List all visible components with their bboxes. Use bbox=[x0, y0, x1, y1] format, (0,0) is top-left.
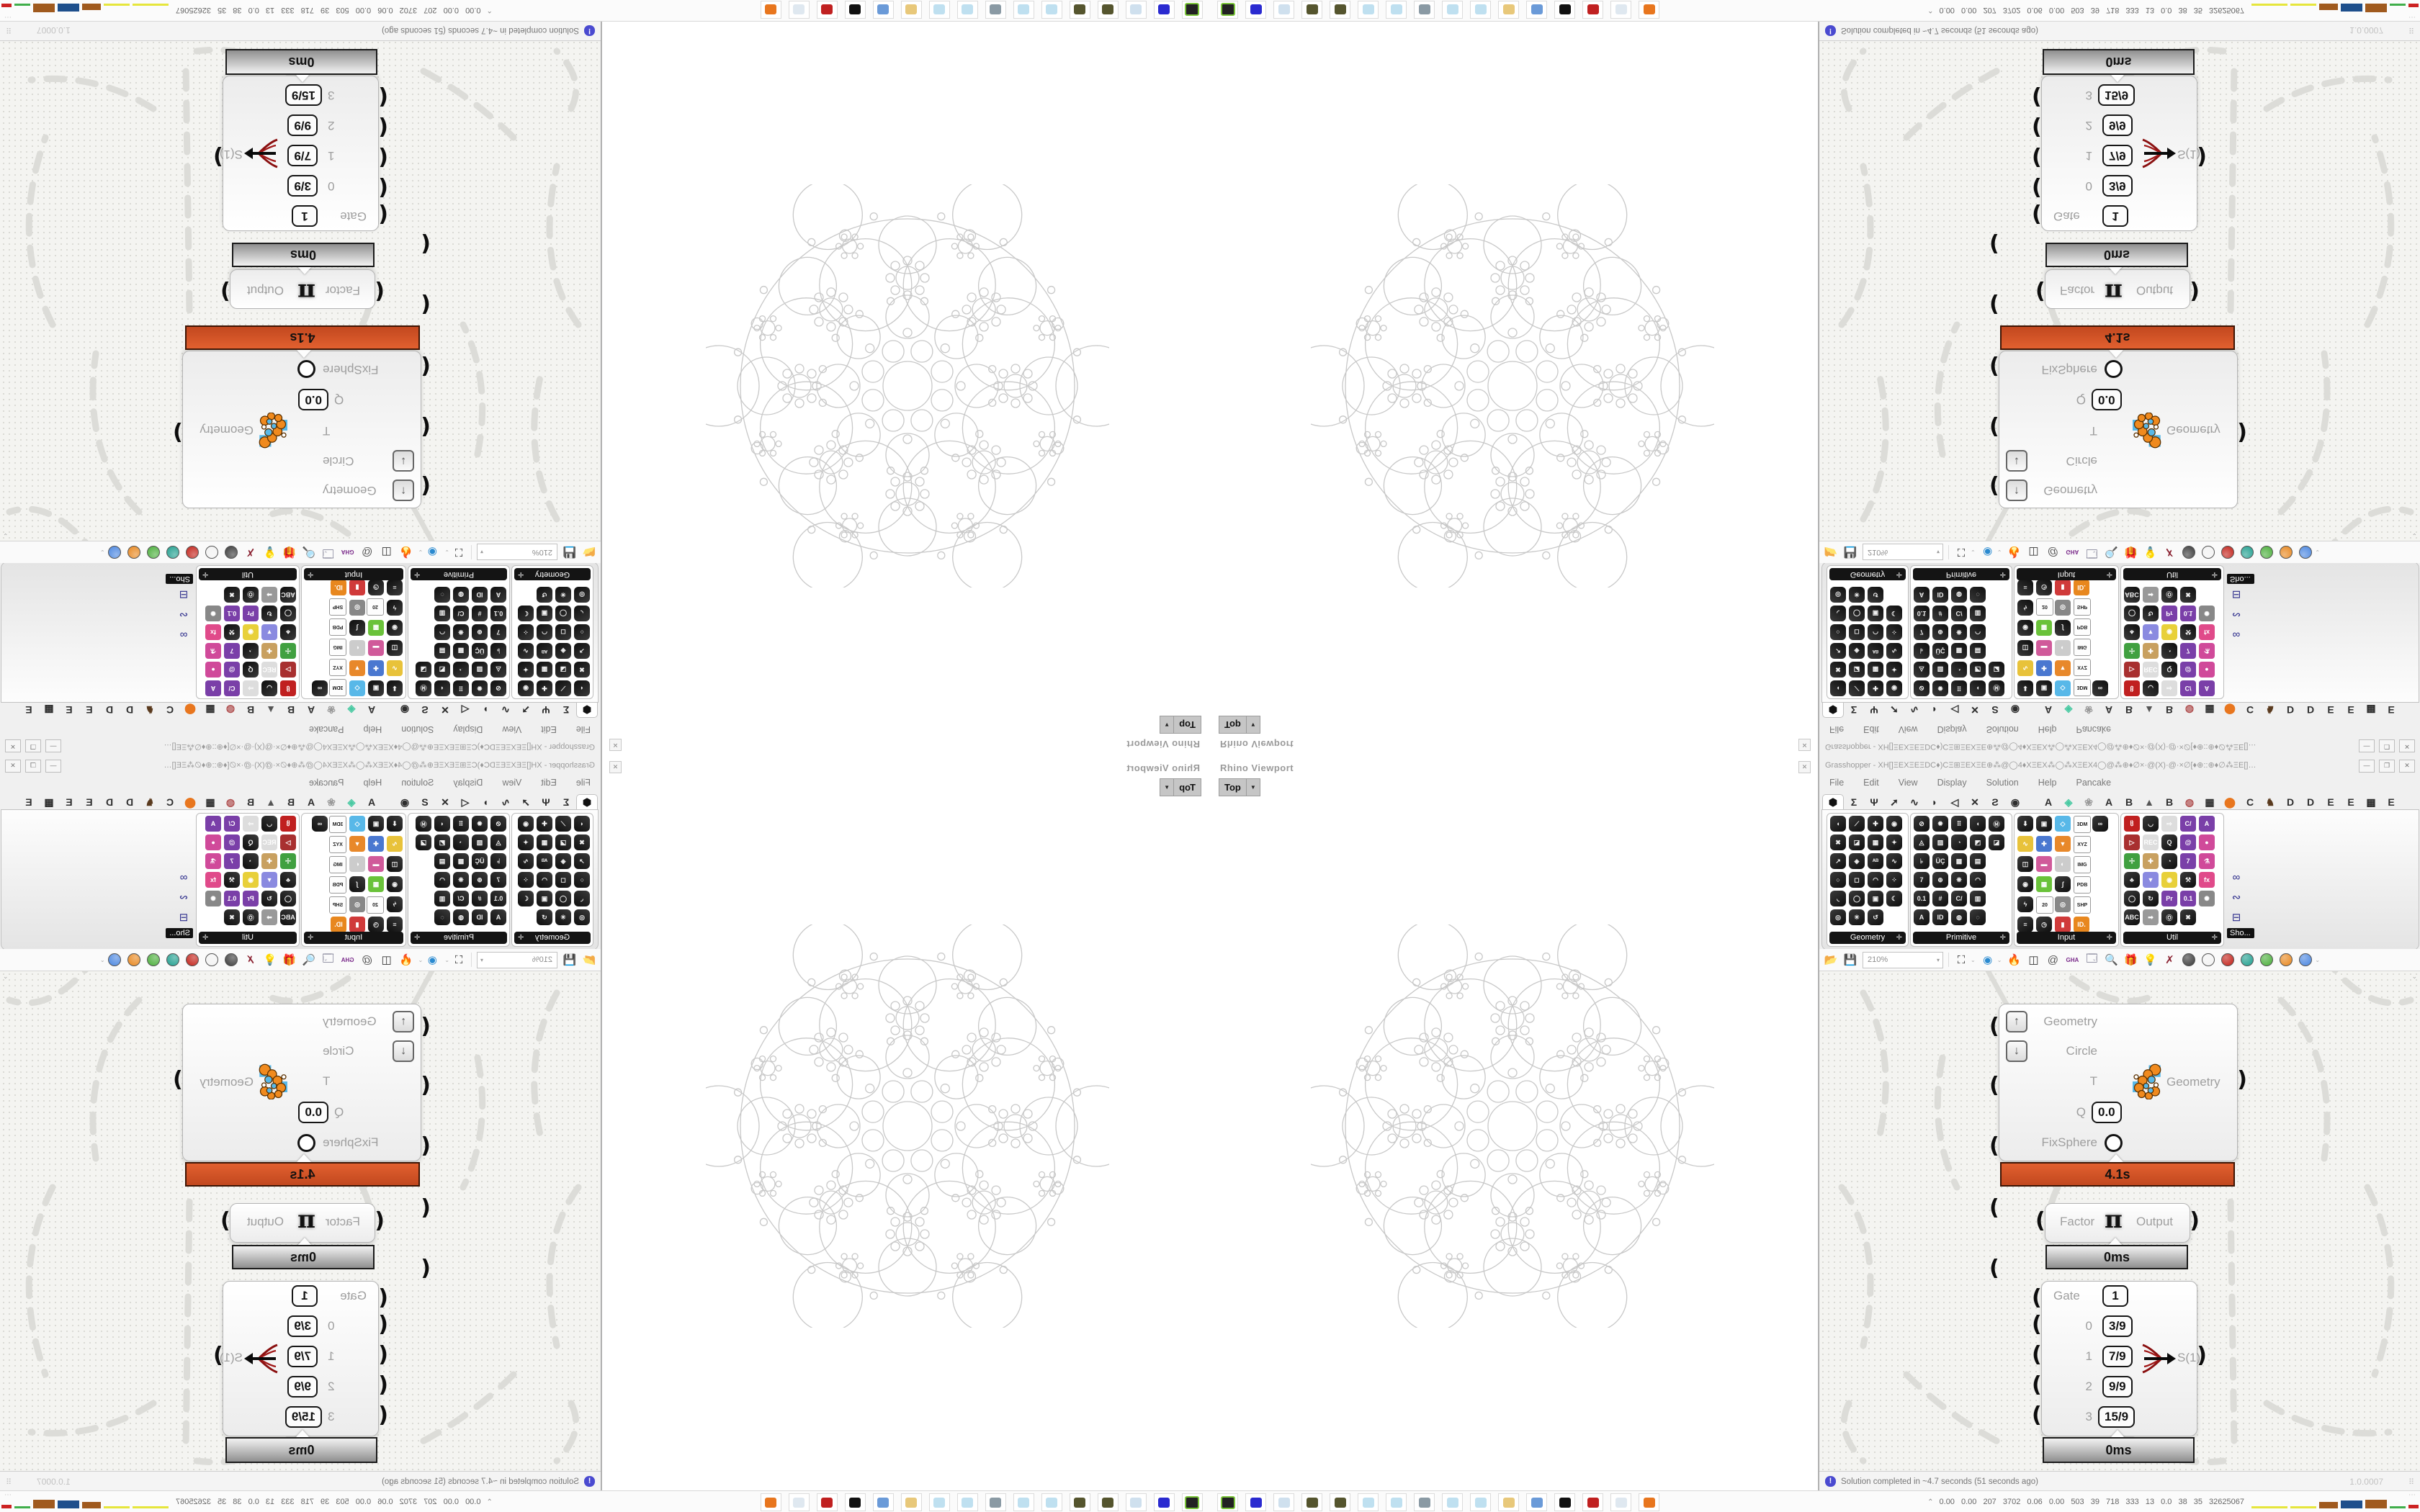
panel-footer[interactable]: Primitive✛ bbox=[1913, 568, 2009, 580]
component-icon[interactable]: ◍ bbox=[453, 587, 469, 603]
panel-footer[interactable]: Input✛ bbox=[2017, 932, 2116, 944]
component-icon[interactable]: ◟ bbox=[1830, 891, 1846, 906]
component-icon[interactable]: ◖ bbox=[434, 680, 450, 696]
component-icon[interactable]: ⁘ bbox=[518, 872, 534, 888]
component-icon[interactable]: PDB bbox=[2074, 618, 2091, 636]
close-icon[interactable]: ✕ bbox=[609, 761, 622, 773]
notepad2-app-icon[interactable] bbox=[1013, 1, 1034, 19]
close-icon[interactable]: ✕ bbox=[1798, 761, 1811, 773]
component-icon[interactable]: ◉ bbox=[518, 680, 534, 696]
component-icon[interactable]: ✖ bbox=[574, 662, 590, 678]
gate-row-value[interactable]: 9/9 bbox=[2102, 1376, 2133, 1398]
component-icon[interactable]: ❋ bbox=[1951, 872, 1967, 888]
preview-shaded-icon[interactable] bbox=[185, 545, 200, 559]
find-icon[interactable]: 🔍 bbox=[302, 545, 316, 559]
group-teal-icon[interactable] bbox=[2240, 953, 2254, 967]
component-icon[interactable]: ◎ bbox=[574, 587, 590, 603]
preview-settings-icon[interactable]: ◉ bbox=[425, 953, 439, 967]
component-icon[interactable]: A bbox=[490, 909, 506, 925]
category-tab[interactable]: A bbox=[2038, 703, 2058, 717]
menu-item-display[interactable]: Display bbox=[453, 720, 483, 734]
component-icon[interactable]: A bbox=[205, 816, 221, 832]
component-icon[interactable]: ✹ bbox=[472, 680, 488, 696]
component-icon[interactable]: A bbox=[490, 587, 506, 603]
output-grip[interactable]: ) bbox=[2197, 147, 2207, 166]
category-tab[interactable]: Σ bbox=[1844, 795, 1864, 809]
category-tab[interactable]: ♞ bbox=[2260, 703, 2280, 717]
component-icon[interactable]: ◉ bbox=[387, 876, 403, 892]
input-grip[interactable]: ( bbox=[1989, 1017, 1999, 1036]
component-icon[interactable]: ◐ bbox=[349, 640, 365, 656]
resize-grip[interactable]: ⠿ bbox=[2408, 1477, 2415, 1487]
arrow-down-icon[interactable]: ↓ bbox=[393, 450, 414, 472]
category-tab[interactable]: ◁ bbox=[1945, 795, 1965, 809]
category-tab[interactable]: Ƨ bbox=[415, 795, 435, 809]
input-grip[interactable]: ( bbox=[1989, 1259, 1999, 1278]
menu-item-view[interactable]: View bbox=[1899, 720, 1918, 734]
component-icon[interactable]: ◪ bbox=[1849, 662, 1865, 678]
chevron-down-icon[interactable]: ⌄ bbox=[2315, 549, 2320, 556]
panel-footer[interactable]: Input✛ bbox=[304, 932, 403, 944]
gate-value-box[interactable]: 1 bbox=[2102, 1285, 2128, 1307]
component-icon[interactable]: Pr bbox=[2161, 606, 2177, 621]
component-icon[interactable]: ◌ bbox=[434, 587, 450, 603]
category-tab[interactable]: E bbox=[79, 795, 99, 809]
preview-off-icon[interactable] bbox=[2182, 545, 2196, 559]
sketch-icon[interactable]: 🔥 bbox=[2007, 953, 2021, 967]
category-tab[interactable]: A bbox=[2099, 703, 2119, 717]
calc-app-icon[interactable] bbox=[1610, 1493, 1631, 1511]
input-grip[interactable]: ( bbox=[2032, 1315, 2042, 1334]
component-icon[interactable]: C/ bbox=[453, 891, 469, 906]
category-tab[interactable]: ∿ bbox=[1904, 703, 1924, 717]
close-icon[interactable]: ✕ bbox=[609, 739, 622, 751]
group-green-icon[interactable] bbox=[2259, 545, 2274, 559]
input-grip[interactable]: ( bbox=[421, 1199, 431, 1218]
component-icon[interactable]: C/ bbox=[1951, 891, 1967, 906]
component-icon[interactable]: ◔ bbox=[453, 662, 469, 678]
presentation-icon[interactable]: ⊟ bbox=[2227, 908, 2246, 927]
component-icon[interactable]: 0.1 bbox=[490, 606, 506, 621]
zoom-extents-icon[interactable]: ⛶ bbox=[1954, 953, 1968, 967]
component-icon[interactable]: ◔ bbox=[1951, 834, 1967, 850]
component-icon[interactable]: 0.1 bbox=[490, 891, 506, 906]
output-grip[interactable]: ) bbox=[213, 1346, 223, 1365]
component-icon[interactable]: ✖ bbox=[224, 587, 240, 603]
arrow-up-icon[interactable]: ↑ bbox=[2006, 1011, 2027, 1032]
category-tab[interactable]: ◈ bbox=[341, 703, 362, 717]
rewire-icon[interactable]: ✗ bbox=[2162, 545, 2177, 559]
group-orange-icon[interactable] bbox=[127, 953, 141, 967]
component-icon[interactable]: ABC bbox=[280, 909, 296, 925]
category-tab[interactable]: E bbox=[79, 703, 99, 717]
gha-icon[interactable]: GHA bbox=[341, 953, 355, 967]
fixsphere-cluster-component[interactable]: ( ↑ Geometry ( ↓ Circle ( T ( bbox=[182, 1004, 421, 1161]
component-icon[interactable]: ◡ bbox=[261, 816, 277, 832]
component-icon[interactable]: ◪ bbox=[555, 662, 571, 678]
input-grip[interactable]: ( bbox=[378, 204, 388, 223]
folder-app-icon[interactable] bbox=[1498, 1493, 1519, 1511]
close-icon[interactable]: ✕ bbox=[2399, 739, 2415, 752]
menu-item-edit[interactable]: Edit bbox=[541, 720, 557, 734]
gate-row-value[interactable]: 3/9 bbox=[2102, 175, 2133, 197]
input-grip[interactable]: ( bbox=[2032, 117, 2042, 136]
component-icon[interactable]: ☩ bbox=[2124, 643, 2140, 659]
component-icon[interactable]: ✺ bbox=[2199, 606, 2215, 621]
gate-row-value[interactable]: 7/9 bbox=[2102, 145, 2133, 166]
category-tab[interactable]: ✕ bbox=[1965, 703, 1985, 717]
chevron-down-icon[interactable]: ⌄ bbox=[3, 531, 9, 539]
grasshopper-canvas[interactable]: ⌄ ( ↑ Geometry ( ↓ Circle ( T bbox=[1820, 41, 2420, 541]
output-grip[interactable]: ) bbox=[2237, 1071, 2247, 1089]
component-icon[interactable]: ◉ bbox=[243, 624, 259, 640]
input-grip[interactable]: ( bbox=[2032, 87, 2042, 106]
component-icon[interactable]: ➡ bbox=[2143, 587, 2159, 603]
pi-component[interactable]: ( Factor π Output ) bbox=[2045, 269, 2190, 309]
component-icon[interactable]: ▦ bbox=[2036, 620, 2052, 636]
chevron-down-icon[interactable]: ⌄ bbox=[418, 957, 423, 963]
component-icon[interactable]: ∞ bbox=[312, 680, 328, 696]
component-icon[interactable]: ▼ bbox=[2055, 660, 2071, 676]
rewire-icon[interactable]: ✗ bbox=[243, 953, 258, 967]
firefox-app-icon[interactable] bbox=[761, 1493, 781, 1511]
component-icon[interactable]: ▨ bbox=[1932, 662, 1948, 678]
component-icon[interactable]: ◖ bbox=[1970, 816, 1986, 832]
save-file-icon[interactable]: 💾 bbox=[563, 953, 577, 967]
wire-record-icon[interactable]: ∞ bbox=[2227, 868, 2246, 886]
component-icon[interactable]: ✹ bbox=[1932, 816, 1948, 832]
component-icon[interactable]: Q bbox=[243, 662, 259, 678]
component-icon[interactable]: ◠ bbox=[434, 872, 450, 888]
badge-app-icon[interactable] bbox=[1582, 1, 1603, 19]
component-icon[interactable]: ◪ bbox=[1989, 662, 2004, 678]
component-icon[interactable]: SHP bbox=[329, 598, 346, 616]
component-icon[interactable]: ♭ bbox=[490, 643, 506, 659]
category-tab[interactable]: ▦ bbox=[200, 703, 220, 717]
calc-app-icon[interactable] bbox=[1610, 1, 1631, 19]
preview-wire-icon[interactable] bbox=[205, 953, 219, 967]
fixsphere-toggle[interactable] bbox=[297, 1134, 315, 1152]
fixsphere-toggle[interactable] bbox=[2105, 1134, 2123, 1152]
component-icon[interactable]: ÜÇ bbox=[472, 643, 488, 659]
chevron-down-icon[interactable]: ⌄ bbox=[1997, 957, 2002, 963]
input-grip[interactable]: ( bbox=[375, 282, 385, 300]
resize-grip[interactable]: ⠿ bbox=[5, 1477, 12, 1487]
component-icon[interactable]: # bbox=[472, 606, 488, 621]
gha-icon[interactable]: GHA bbox=[341, 545, 355, 559]
component-icon[interactable]: ✹ bbox=[1932, 680, 1948, 696]
input-grip[interactable]: ( bbox=[378, 117, 388, 136]
panel-footer[interactable]: Util✛ bbox=[199, 568, 297, 580]
component-icon[interactable]: ♭ bbox=[1914, 643, 1930, 659]
component-icon[interactable]: ⚗ bbox=[2199, 853, 2215, 869]
component-icon[interactable]: 20 bbox=[367, 896, 384, 914]
component-icon[interactable]: ▮ bbox=[2055, 917, 2071, 932]
category-tab[interactable]: ❀ bbox=[321, 703, 341, 717]
component-icon[interactable]: 7 bbox=[224, 643, 240, 659]
component-icon[interactable]: ▨ bbox=[1932, 834, 1948, 850]
chevron-down-icon[interactable]: ⌄ bbox=[444, 549, 449, 556]
document-icon[interactable]: 🗔 bbox=[321, 545, 336, 559]
component-icon[interactable]: ◖ bbox=[574, 816, 590, 832]
component-icon[interactable]: ◔ bbox=[243, 853, 259, 869]
preview-shaded-icon[interactable] bbox=[2220, 953, 2235, 967]
component-icon[interactable]: IMG bbox=[2074, 856, 2091, 873]
chevron-down-icon[interactable]: ⌄ bbox=[418, 549, 423, 556]
component-icon[interactable]: Pr bbox=[243, 606, 259, 621]
component-icon[interactable]: ∫ bbox=[2055, 876, 2071, 892]
component-icon[interactable]: ◠ bbox=[1868, 872, 1883, 888]
component-icon[interactable]: ∞ bbox=[312, 816, 328, 832]
component-icon[interactable]: ↺ bbox=[1868, 909, 1883, 925]
component-icon[interactable]: ◐ bbox=[2055, 640, 2071, 656]
category-tab[interactable]: ▩ bbox=[39, 795, 59, 809]
firefox-app-icon[interactable] bbox=[761, 1, 781, 19]
menu-item-view[interactable]: View bbox=[1899, 778, 1918, 792]
component-icon[interactable]: ÜÇ bbox=[1932, 643, 1948, 659]
category-tab[interactable]: ◉ bbox=[395, 795, 415, 809]
chevron-down-icon[interactable]: ⌄ bbox=[2411, 531, 2417, 539]
gate-row-value[interactable]: 15/9 bbox=[285, 84, 322, 106]
gate-row-value[interactable]: 9/9 bbox=[287, 114, 318, 136]
component-icon[interactable]: 3DM bbox=[329, 816, 346, 833]
pinball-app-icon[interactable] bbox=[845, 1493, 866, 1511]
input-grip[interactable]: ( bbox=[421, 476, 431, 495]
category-tab[interactable]: ◈ bbox=[2058, 795, 2079, 809]
component-icon[interactable]: 7 bbox=[2180, 643, 2196, 659]
pinball-app-icon[interactable] bbox=[1554, 1, 1575, 19]
gate-row-value[interactable]: 7/9 bbox=[287, 145, 318, 166]
category-tab[interactable]: A bbox=[2099, 795, 2119, 809]
gha-icon[interactable]: GHA bbox=[2065, 545, 2079, 559]
component-icon[interactable]: ⊘ bbox=[1914, 680, 1930, 696]
find-icon[interactable]: 🔍 bbox=[302, 953, 316, 967]
floppy64-app-icon[interactable] bbox=[1154, 1493, 1175, 1511]
category-tab[interactable]: Ψ bbox=[1864, 795, 1884, 809]
tray-overflow-icon[interactable]: ⋯ bbox=[4, 13, 12, 21]
component-icon[interactable]: Pr bbox=[243, 891, 259, 906]
component-icon[interactable]: ◎ bbox=[1830, 909, 1846, 925]
stream-gate-component[interactable]: ( Gate 1 (03/9(17/9(29/9(315/9 S(1) bbox=[2041, 1281, 2197, 1436]
category-tab[interactable]: ∿ bbox=[496, 703, 516, 717]
component-icon[interactable]: ჱ bbox=[280, 816, 296, 832]
category-tab[interactable]: E bbox=[2381, 795, 2401, 809]
component-icon[interactable]: ✺ bbox=[205, 606, 221, 621]
component-icon[interactable]: ◯ bbox=[2124, 891, 2140, 906]
component-icon[interactable]: ⬇ bbox=[2017, 680, 2033, 696]
component-icon[interactable]: ᴬᴮ bbox=[537, 643, 552, 659]
category-tab[interactable]: ❀ bbox=[321, 795, 341, 809]
panel-footer[interactable]: Geometry✛ bbox=[1829, 932, 1906, 944]
category-tab[interactable]: D bbox=[99, 703, 120, 717]
component-icon[interactable]: ↗ bbox=[1830, 853, 1846, 869]
component-icon[interactable]: ◌ bbox=[434, 909, 450, 925]
wire-record-icon[interactable]: ∞ bbox=[2227, 626, 2246, 644]
component-icon[interactable]: ◍ bbox=[1951, 587, 1967, 603]
component-icon[interactable]: ✖ bbox=[2180, 909, 2196, 925]
component-icon[interactable]: XYZ bbox=[329, 836, 346, 853]
component-icon[interactable]: ◉ bbox=[2017, 876, 2033, 892]
viewport-name-dropdown[interactable]: Top ▼ bbox=[1160, 778, 1201, 796]
tray-expand-icon[interactable]: ⌃ bbox=[486, 1498, 492, 1506]
component-icon[interactable]: ▤ bbox=[434, 853, 450, 869]
category-tab[interactable]: ◗ bbox=[1924, 703, 1945, 717]
component-icon[interactable]: ID bbox=[472, 587, 488, 603]
group-green-icon[interactable] bbox=[2259, 953, 2274, 967]
component-icon[interactable]: ↗ bbox=[1830, 643, 1846, 659]
category-tab[interactable]: ♞ bbox=[2260, 795, 2280, 809]
category-tab[interactable]: ▦ bbox=[2200, 795, 2220, 809]
preview-off-icon[interactable] bbox=[2182, 953, 2196, 967]
component-icon[interactable]: ◩ bbox=[1970, 834, 1986, 850]
panel-footer[interactable]: Geometry✛ bbox=[514, 568, 591, 580]
input-grip[interactable]: ( bbox=[1989, 1076, 1999, 1095]
open-file-icon[interactable]: 📂 bbox=[1824, 953, 1838, 967]
component-icon[interactable]: ◡ bbox=[261, 680, 277, 696]
component-icon[interactable]: ● bbox=[205, 662, 221, 678]
notepad4-app-icon[interactable] bbox=[929, 1493, 950, 1511]
category-tab[interactable]: C bbox=[160, 795, 180, 809]
component-icon[interactable]: 3DM bbox=[329, 679, 346, 696]
category-tab[interactable]: B bbox=[281, 703, 301, 717]
component-icon[interactable]: ◫ bbox=[387, 640, 403, 656]
component-icon[interactable]: ☾ bbox=[518, 891, 534, 906]
maximize-icon[interactable]: ❐ bbox=[2379, 739, 2395, 752]
notepad3-app-icon[interactable] bbox=[957, 1, 978, 19]
component-icon[interactable]: ◠ bbox=[537, 872, 552, 888]
presentation-icon[interactable]: ⊟ bbox=[2227, 585, 2246, 604]
component-icon[interactable]: ◎ bbox=[2055, 600, 2071, 616]
control-app-icon[interactable] bbox=[1526, 1, 1547, 19]
group-blue-icon[interactable] bbox=[107, 545, 122, 559]
badge-app-icon[interactable] bbox=[817, 1493, 838, 1511]
category-tab[interactable]: D bbox=[120, 703, 140, 717]
input-grip[interactable]: ( bbox=[378, 1376, 388, 1395]
component-icon[interactable]: ⚒ bbox=[2180, 872, 2196, 888]
component-icon[interactable]: ◈ bbox=[555, 853, 571, 869]
component-icon[interactable]: ♣ bbox=[280, 872, 296, 888]
component-icon[interactable]: ✳ bbox=[1849, 587, 1865, 603]
component-icon[interactable]: ◻ bbox=[1849, 624, 1865, 640]
component-icon[interactable]: ◌ bbox=[1970, 909, 1986, 925]
category-tab[interactable]: ⬢ bbox=[1822, 794, 1844, 809]
category-tab[interactable]: ◉ bbox=[2005, 795, 2025, 809]
input-grip[interactable]: ( bbox=[378, 1406, 388, 1425]
arrow-up-icon[interactable]: ↑ bbox=[2006, 480, 2027, 501]
component-icon[interactable]: XYZ bbox=[2074, 836, 2091, 853]
component-icon[interactable]: ▥ bbox=[434, 606, 450, 621]
folder-app-icon[interactable] bbox=[901, 1493, 922, 1511]
component-icon[interactable]: ÜÇ bbox=[472, 853, 488, 869]
notepad3-app-icon[interactable] bbox=[1442, 1493, 1463, 1511]
output-grip[interactable]: ) bbox=[213, 147, 223, 166]
component-icon[interactable]: ▣ bbox=[368, 816, 384, 832]
component-icon[interactable]: XYZ bbox=[2074, 659, 2091, 676]
component-icon[interactable]: ▤ bbox=[434, 643, 450, 659]
component-icon[interactable]: ▬ bbox=[2036, 856, 2052, 872]
output-grip[interactable]: ) bbox=[173, 1071, 183, 1089]
component-icon[interactable]: ∿ bbox=[518, 643, 534, 659]
component-icon[interactable]: REC bbox=[261, 834, 277, 850]
component-icon[interactable]: ∿ bbox=[2017, 660, 2033, 676]
component-icon[interactable]: ⇨ bbox=[243, 680, 259, 696]
notepad4-app-icon[interactable] bbox=[1470, 1493, 1491, 1511]
component-icon[interactable]: ▬ bbox=[368, 856, 384, 872]
component-icon[interactable]: ▮ bbox=[349, 580, 365, 595]
menu-item-solution[interactable]: Solution bbox=[401, 778, 434, 792]
category-tab[interactable]: ▲ bbox=[261, 703, 281, 717]
component-icon[interactable]: ⇨ bbox=[243, 816, 259, 832]
input-grip[interactable]: ( bbox=[378, 1315, 388, 1334]
notepad-app-icon[interactable] bbox=[1358, 1, 1379, 19]
component-icon[interactable]: ◩ bbox=[434, 662, 450, 678]
component-icon[interactable]: ◟ bbox=[574, 891, 590, 906]
component-icon[interactable]: ⬇ bbox=[387, 816, 403, 832]
maximize-icon[interactable]: ❐ bbox=[2379, 760, 2395, 773]
component-icon[interactable]: ▥ bbox=[434, 891, 450, 906]
component-icon[interactable]: ↺ bbox=[537, 909, 552, 925]
component-icon[interactable]: ▦ bbox=[537, 834, 552, 850]
publish-icon[interactable]: @ bbox=[2045, 953, 2060, 967]
arrow-up-icon[interactable]: ↑ bbox=[393, 1011, 414, 1032]
component-icon[interactable]: ⬇ bbox=[2017, 816, 2033, 832]
component-icon[interactable]: SHP bbox=[2074, 896, 2091, 914]
zoom-level-input[interactable]: 210%▾ bbox=[1863, 952, 1943, 968]
component-icon[interactable]: ↺ bbox=[1868, 587, 1883, 603]
fixsphere-cluster-component[interactable]: ( ↑ Geometry ( ↓ Circle ( T ( bbox=[1999, 351, 2238, 508]
chevron-down-icon[interactable]: ⌄ bbox=[100, 957, 105, 963]
component-icon[interactable]: ∫ bbox=[349, 620, 365, 636]
category-tab[interactable]: ⬢ bbox=[576, 794, 598, 809]
component-icon[interactable]: ◠ bbox=[1970, 872, 1986, 888]
component-icon[interactable]: ✚ bbox=[368, 836, 384, 852]
grasshopper-titlebar[interactable]: Grasshopper - XH[]ΞΕΧΞΕΞDC♦)CΞ⊞ΞΕΧΞΕ⊕⁂@◯… bbox=[0, 737, 601, 756]
fixsphere-cluster-component[interactable]: ( ↑ Geometry ( ↓ Circle ( T ( bbox=[182, 351, 421, 508]
component-icon[interactable]: ▦ bbox=[368, 876, 384, 892]
component-icon[interactable]: ∿ bbox=[1886, 853, 1902, 869]
component-icon[interactable]: ▥ bbox=[1970, 606, 1986, 621]
component-icon[interactable]: ⟋ bbox=[1849, 816, 1865, 832]
component-icon[interactable]: ჱ bbox=[2124, 680, 2140, 696]
blinds-icon[interactable]: ◫ bbox=[380, 545, 394, 559]
hint-icon[interactable]: 💡 bbox=[2143, 545, 2157, 559]
gate-row-value[interactable]: 15/9 bbox=[285, 1406, 322, 1428]
package-icon[interactable]: 🎁 bbox=[2123, 953, 2138, 967]
category-tab[interactable]: ▦ bbox=[200, 795, 220, 809]
category-tab[interactable]: A bbox=[362, 703, 382, 717]
publish-icon[interactable]: @ bbox=[360, 545, 375, 559]
menu-item-pancake[interactable]: Pancake bbox=[2076, 720, 2111, 734]
component-icon[interactable]: ◔ bbox=[2161, 643, 2177, 659]
close-icon[interactable]: ✕ bbox=[5, 760, 21, 773]
component-icon[interactable]: ∿ bbox=[518, 853, 534, 869]
mossball2-app-icon[interactable] bbox=[1330, 1493, 1350, 1511]
group-blue-icon[interactable] bbox=[107, 953, 122, 967]
menu-item-display[interactable]: Display bbox=[1937, 778, 1967, 792]
input-grip[interactable]: ( bbox=[421, 1259, 431, 1278]
close-icon[interactable]: ✕ bbox=[1798, 739, 1811, 751]
notepad2-app-icon[interactable] bbox=[1386, 1493, 1407, 1511]
component-icon[interactable]: ◍ bbox=[1951, 909, 1967, 925]
category-tab[interactable]: B bbox=[2159, 703, 2179, 717]
component-icon[interactable]: ◷ bbox=[2036, 917, 2052, 932]
category-tab[interactable]: ✕ bbox=[435, 703, 455, 717]
component-icon[interactable]: ▷ bbox=[2124, 834, 2140, 850]
input-grip[interactable]: ( bbox=[1989, 1199, 1999, 1218]
wire-hook-icon[interactable]: ∾ bbox=[174, 606, 193, 624]
component-icon[interactable]: ✳ bbox=[555, 909, 571, 925]
component-icon[interactable]: ◯ bbox=[555, 891, 571, 906]
